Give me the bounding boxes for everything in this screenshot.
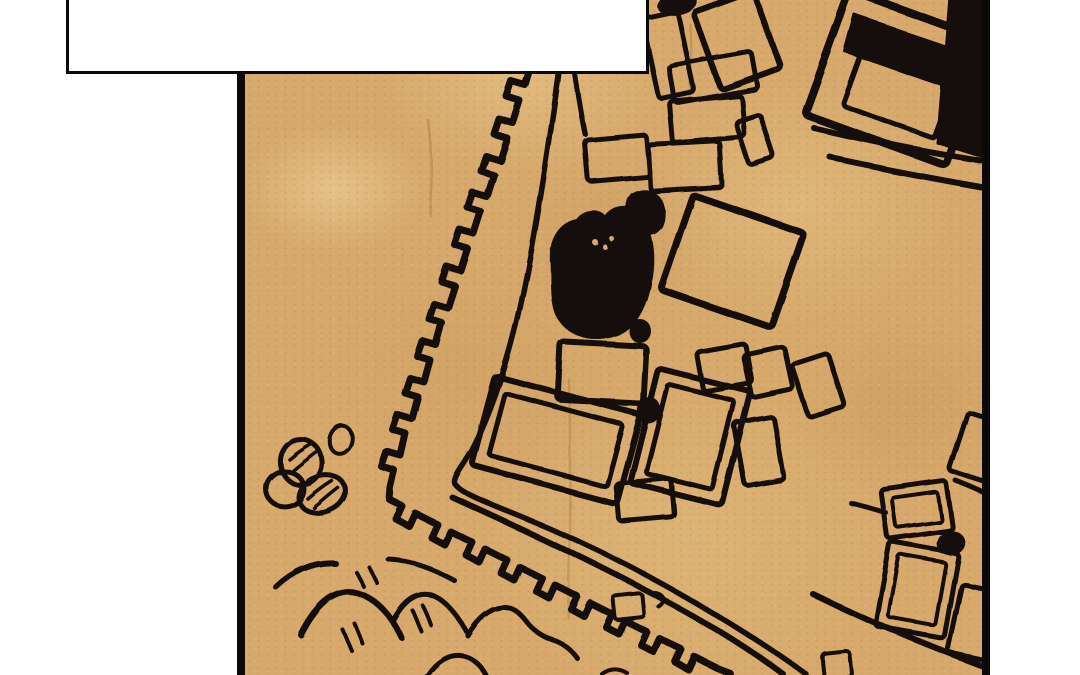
building xyxy=(660,195,804,328)
building xyxy=(693,0,781,89)
comic-page xyxy=(0,0,1080,675)
building xyxy=(613,593,645,620)
building xyxy=(949,411,982,484)
building xyxy=(736,114,775,166)
speech-bubble xyxy=(66,0,649,74)
building xyxy=(791,352,844,417)
map-panel xyxy=(237,0,990,675)
city-wall xyxy=(382,66,806,674)
building xyxy=(642,11,694,99)
building xyxy=(822,651,853,675)
ink-blots xyxy=(551,0,982,558)
building xyxy=(648,141,722,191)
map-drawing xyxy=(245,0,982,675)
speech-bubble-text xyxy=(69,0,646,71)
building xyxy=(881,481,953,540)
building xyxy=(669,95,744,143)
building xyxy=(584,134,649,181)
rocks xyxy=(266,424,355,519)
building xyxy=(630,368,751,505)
buildings xyxy=(472,0,982,675)
sea-waves xyxy=(276,560,627,675)
building xyxy=(875,542,959,639)
